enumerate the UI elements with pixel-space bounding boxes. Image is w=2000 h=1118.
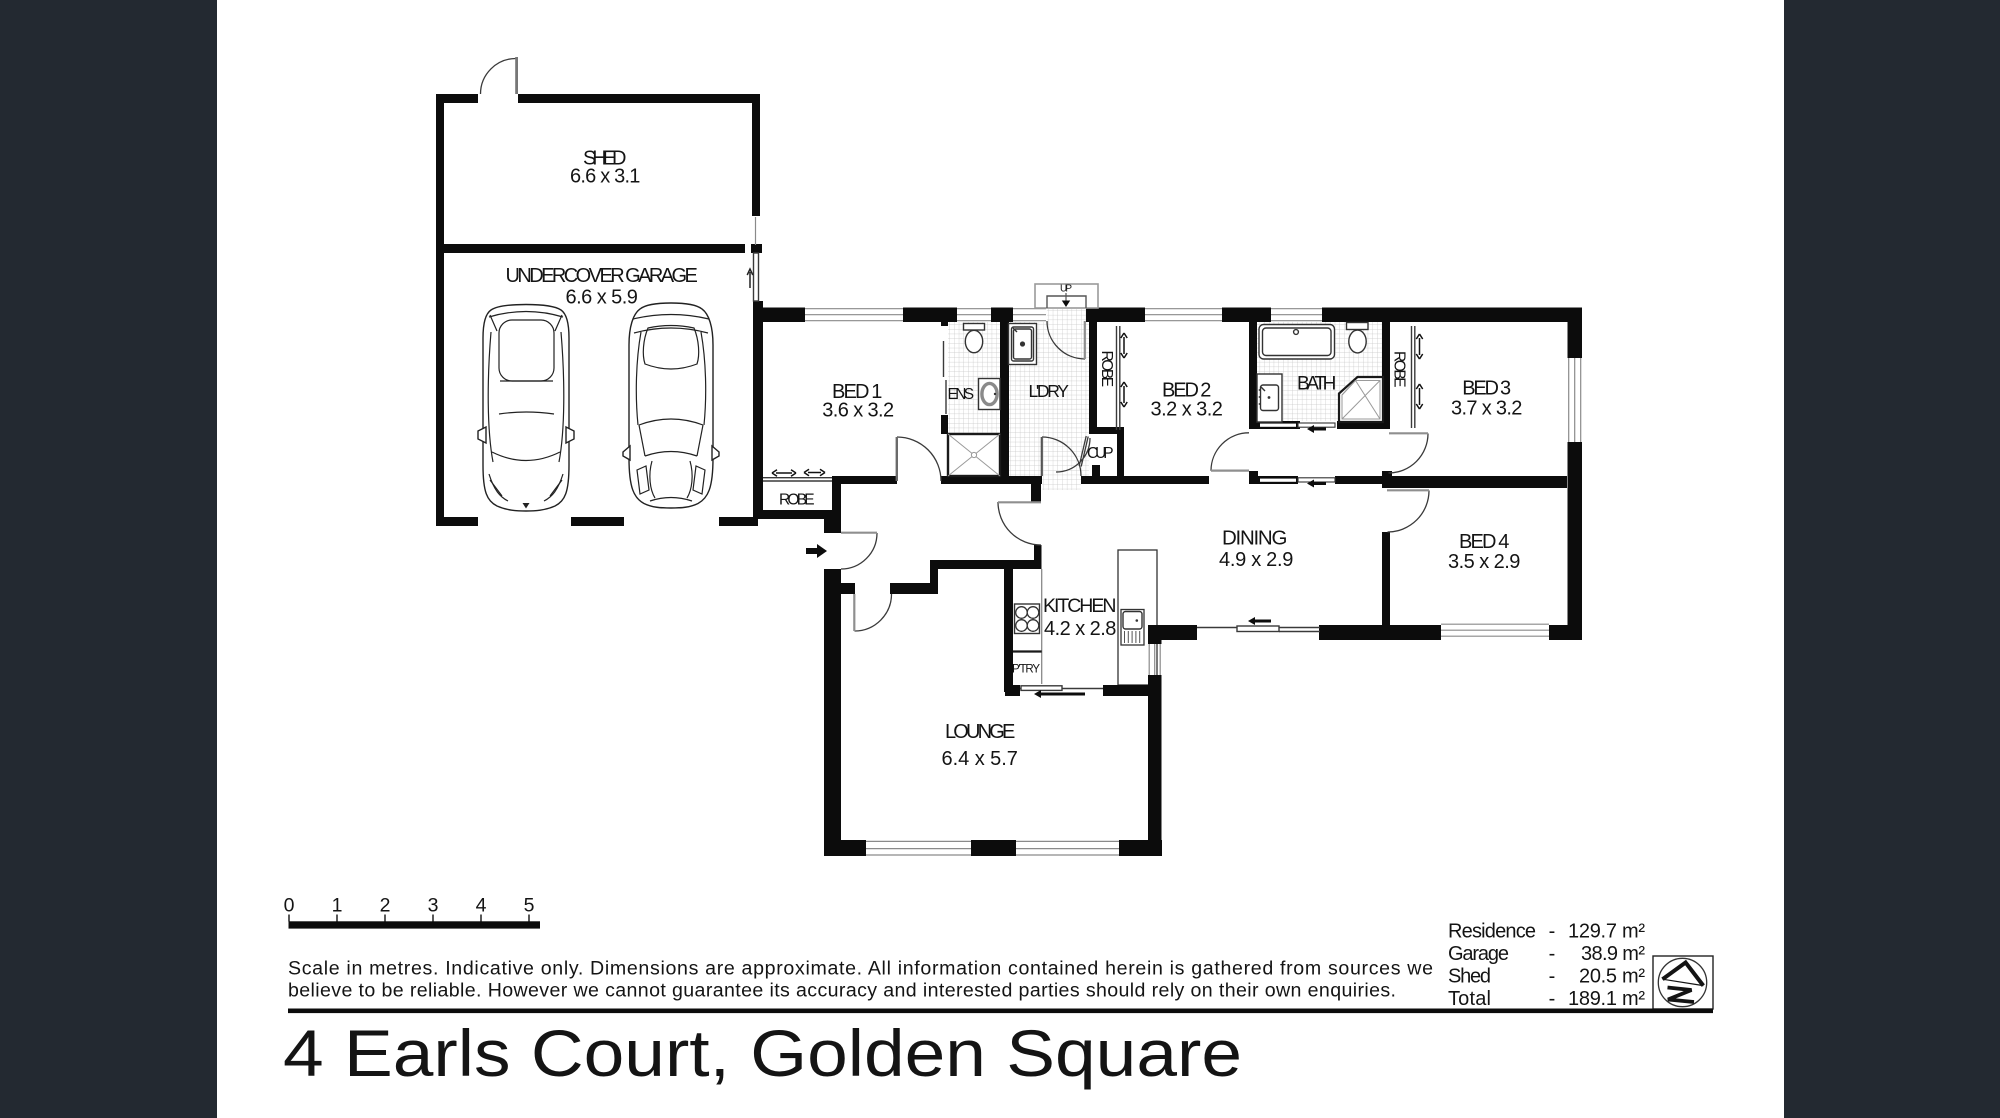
svg-text:-: - <box>1549 943 1556 965</box>
svg-text:Total: Total <box>1448 988 1491 1010</box>
svg-text:3.6 x 3.2: 3.6 x 3.2 <box>822 400 895 422</box>
svg-text:6.4 x 5.7: 6.4 x 5.7 <box>942 748 1019 770</box>
svg-text:Residence: Residence <box>1448 921 1536 943</box>
svg-text:ROBE: ROBE <box>1391 351 1408 388</box>
svg-text:KITCHEN: KITCHEN <box>1043 595 1117 617</box>
svg-text:believe to be reliable. Howeve: believe to be reliable. However we canno… <box>288 980 1396 1002</box>
svg-text:6.6 x 3.1: 6.6 x 3.1 <box>570 166 641 188</box>
svg-text:L'DRY: L'DRY <box>1029 381 1070 401</box>
svg-text:BATH: BATH <box>1297 374 1337 395</box>
svg-text:ROBE: ROBE <box>1098 351 1115 388</box>
svg-text:129.7 m²: 129.7 m² <box>1568 921 1645 943</box>
svg-text:Garage: Garage <box>1448 943 1509 965</box>
svg-text:UNDERCOVER GARAGE: UNDERCOVER GARAGE <box>506 265 699 287</box>
svg-text:2: 2 <box>380 895 391 917</box>
svg-text:1: 1 <box>332 895 343 917</box>
svg-text:ROBE: ROBE <box>779 492 815 509</box>
svg-text:-: - <box>1549 921 1556 943</box>
svg-text:4 Earls Court, Golden Square: 4 Earls Court, Golden Square <box>283 1016 1242 1090</box>
svg-text:-: - <box>1549 966 1556 988</box>
svg-text:0: 0 <box>284 895 295 917</box>
svg-text:UP: UP <box>1060 284 1072 295</box>
svg-text:4: 4 <box>476 895 487 917</box>
svg-text:BED 3: BED 3 <box>1462 378 1512 400</box>
svg-text:3.7 x 3.2: 3.7 x 3.2 <box>1451 398 1523 420</box>
svg-text:ENS: ENS <box>948 386 975 403</box>
svg-text:DINING: DINING <box>1222 527 1288 550</box>
svg-text:3.2 x 3.2: 3.2 x 3.2 <box>1151 399 1224 421</box>
svg-text:6.6 x 5.9: 6.6 x 5.9 <box>566 287 639 309</box>
svg-text:20.5 m²: 20.5 m² <box>1579 966 1645 988</box>
svg-text:P'TRY: P'TRY <box>1012 664 1040 676</box>
svg-text:4.9 x 2.9: 4.9 x 2.9 <box>1219 549 1294 571</box>
svg-text:Shed: Shed <box>1448 966 1491 988</box>
svg-text:Scale in metres. Indicative on: Scale in metres. Indicative only. Dimens… <box>288 958 1433 980</box>
svg-text:BED 4: BED 4 <box>1459 531 1510 553</box>
svg-text:189.1 m²: 189.1 m² <box>1568 988 1645 1010</box>
svg-text:3.5 x 2.9: 3.5 x 2.9 <box>1448 551 1521 573</box>
svg-text:-: - <box>1549 988 1556 1010</box>
svg-text:38.9 m²: 38.9 m² <box>1581 943 1645 965</box>
svg-text:3: 3 <box>428 895 439 917</box>
svg-text:CUP: CUP <box>1087 445 1114 462</box>
svg-text:LOUNGE: LOUNGE <box>945 721 1016 743</box>
svg-text:4.2 x 2.8: 4.2 x 2.8 <box>1044 618 1117 640</box>
svg-text:5: 5 <box>524 895 535 917</box>
